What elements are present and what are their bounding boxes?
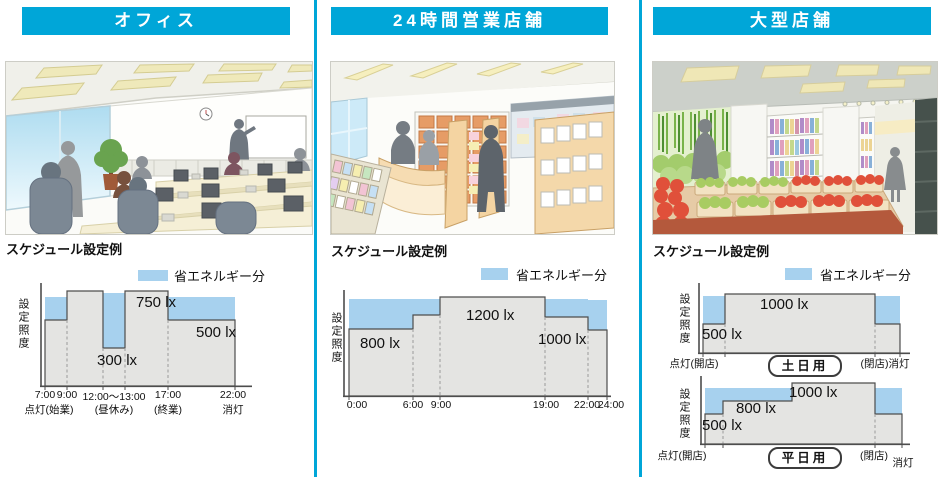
weekend-chart-plot	[698, 283, 914, 359]
office-tick-1700: 17:00	[155, 389, 181, 401]
office-caption: スケジュール設定例	[6, 239, 122, 258]
store24h-tick-900: 9:00	[431, 399, 451, 411]
office-note-end: (終業)	[154, 402, 182, 417]
store24h-tick-600: 6:00	[403, 399, 423, 411]
store24h-title: 24時間営業店舗	[331, 7, 608, 35]
store24h-legend-label: 省エネルギー分	[516, 265, 607, 284]
store24h-value-1000: 1000 lx	[538, 331, 586, 348]
office-tick-700: 7:00	[35, 389, 55, 401]
panel-divider-1	[314, 0, 317, 477]
office-value-500: 500 lx	[196, 324, 236, 341]
weekend-badge: 土日用	[768, 355, 842, 377]
weekday-value-800: 800 lx	[736, 400, 776, 417]
office-tick-2200: 22:00	[220, 389, 246, 401]
store24h-tick-2400: 24:00	[598, 399, 624, 411]
panel-divider-2	[639, 0, 642, 477]
office-value-300: 300 lx	[97, 352, 137, 369]
office-tick-900: 9:00	[57, 389, 77, 401]
office-note-lunch: (昼休み)	[95, 402, 134, 417]
office-chart-ylabel: 設定照度	[15, 298, 31, 350]
weekday-value-1000: 1000 lx	[789, 384, 837, 401]
weekday-tick-off: 消灯	[893, 455, 914, 470]
weekend-value-1000: 1000 lx	[760, 296, 808, 313]
weekend-chart-ylabel: 設定照度	[676, 293, 692, 345]
largestore-legend-label: 省エネルギー分	[820, 265, 911, 284]
office-value-750: 750 lx	[136, 294, 176, 311]
store24h-value-800: 800 lx	[360, 335, 400, 352]
office-legend-swatch	[138, 270, 168, 281]
largestore-caption: スケジュール設定例	[653, 241, 769, 260]
largestore-illustration	[652, 61, 938, 235]
weekday-value-500: 500 lx	[702, 417, 742, 434]
office-note-start: 点灯(始業)	[25, 402, 74, 417]
weekend-tick-close: (閉店)消灯	[861, 356, 910, 371]
weekday-chart-ylabel: 設定照度	[676, 388, 692, 440]
largestore-title: 大型店舗	[653, 7, 931, 35]
weekday-tick-close: (閉店)	[860, 448, 888, 463]
panel-office-title: オフィス	[22, 7, 290, 35]
store24h-value-1200: 1200 lx	[466, 307, 514, 324]
weekday-tick-open: 点灯(開店)	[658, 448, 707, 463]
store24h-illustration	[330, 61, 615, 235]
store24h-tick-000: 0:00	[347, 399, 367, 411]
office-note-off: 消灯	[223, 402, 244, 417]
store24h-tick-2200: 22:00	[574, 399, 600, 411]
largestore-legend-swatch	[785, 268, 812, 280]
weekend-tick-open: 点灯(開店)	[670, 356, 719, 371]
weekend-value-500: 500 lx	[702, 326, 742, 343]
lighting-schedule-figure: オフィス	[0, 0, 940, 477]
store24h-legend-swatch	[481, 268, 508, 280]
office-illustration	[5, 61, 313, 235]
store24h-chart-ylabel: 設定照度	[328, 312, 344, 364]
store24h-caption: スケジュール設定例	[331, 241, 447, 260]
weekday-badge: 平日用	[768, 447, 842, 469]
store24h-tick-1900: 19:00	[533, 399, 559, 411]
